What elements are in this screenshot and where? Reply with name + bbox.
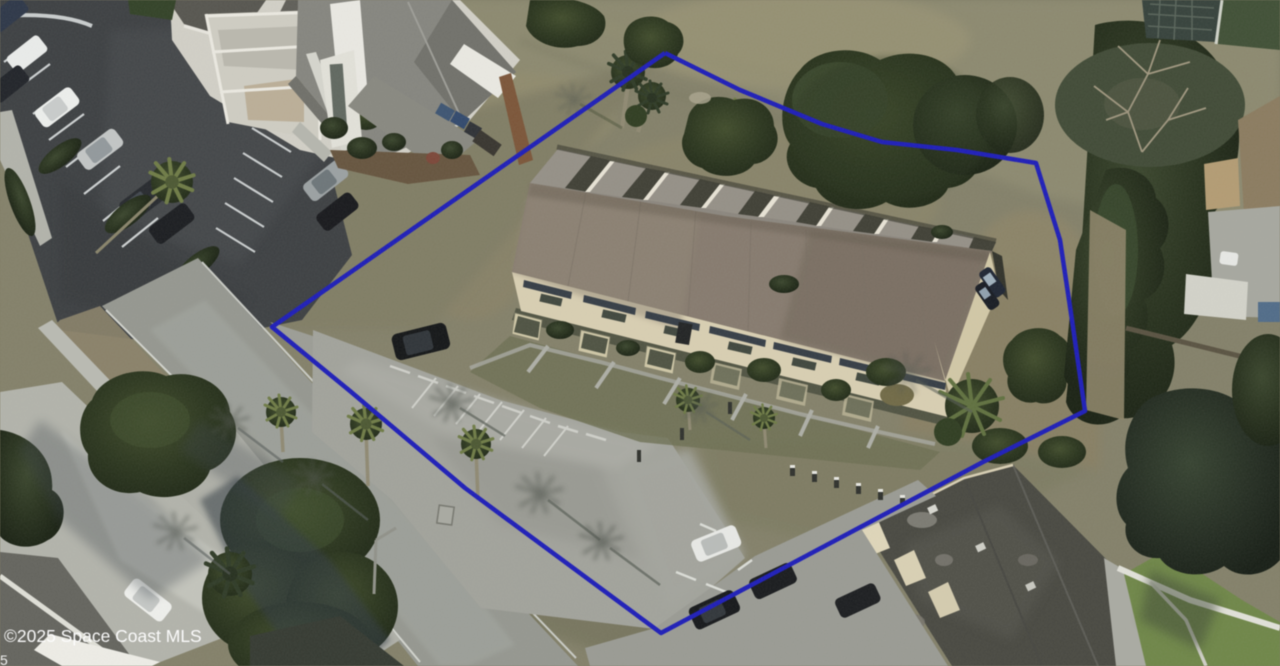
svg-text:©2025 Space Coast MLS: ©2025 Space Coast MLS xyxy=(4,626,202,646)
svg-text:5: 5 xyxy=(0,652,8,666)
